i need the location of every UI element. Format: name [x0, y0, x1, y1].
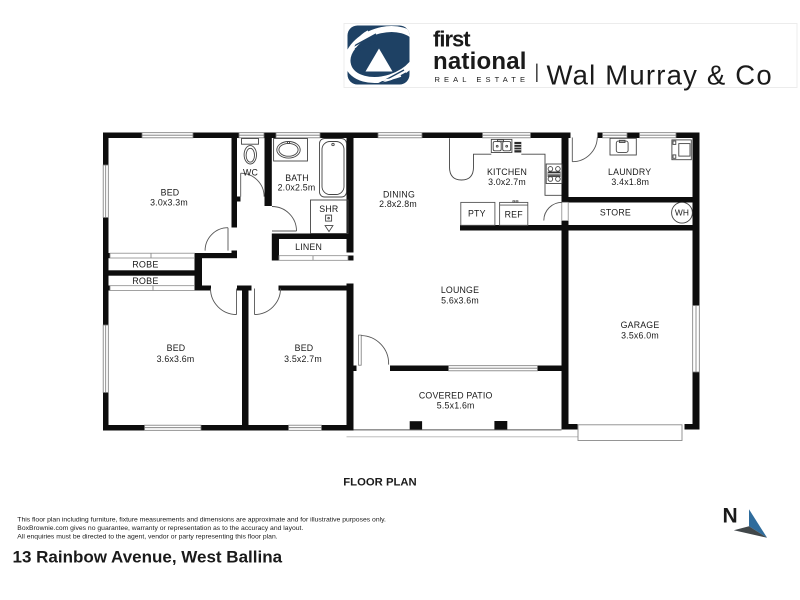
svg-text:SHR: SHR	[319, 204, 338, 214]
svg-text:3.0x3.3m: 3.0x3.3m	[150, 197, 188, 207]
svg-text:LOUNGE: LOUNGE	[441, 285, 479, 295]
svg-text:WC: WC	[243, 168, 259, 178]
svg-text:BED: BED	[167, 343, 186, 353]
svg-text:13 Rainbow Avenue, West Ballin: 13 Rainbow Avenue, West Ballina	[13, 548, 283, 567]
svg-text:3.4x1.8m: 3.4x1.8m	[611, 177, 649, 187]
svg-text:LAUNDRY: LAUNDRY	[608, 167, 651, 177]
svg-text:5.5x1.6m: 5.5x1.6m	[437, 401, 475, 411]
svg-text:PTY: PTY	[468, 208, 486, 218]
svg-text:5.6x3.6m: 5.6x3.6m	[441, 295, 479, 305]
svg-text:N: N	[723, 504, 738, 527]
svg-text:ROBE: ROBE	[132, 276, 158, 286]
svg-text:BATH: BATH	[285, 173, 309, 183]
svg-text:BED: BED	[295, 343, 314, 353]
svg-text:Wal Murray & Co: Wal Murray & Co	[547, 59, 773, 90]
svg-text:GARAGE: GARAGE	[621, 320, 660, 330]
svg-text:All enquiries must be directed: All enquiries must be directed to the ag…	[17, 534, 277, 541]
svg-text:KITCHEN: KITCHEN	[487, 167, 527, 177]
svg-text:LINEN: LINEN	[295, 242, 322, 252]
svg-text:REF: REF	[505, 209, 524, 219]
svg-text:3.6x3.6m: 3.6x3.6m	[157, 354, 195, 364]
svg-text:2.8x2.8m: 2.8x2.8m	[379, 199, 417, 209]
svg-text:STORE: STORE	[600, 208, 631, 218]
svg-text:3.5x2.7m: 3.5x2.7m	[284, 354, 322, 364]
svg-text:COVERED PATIO: COVERED PATIO	[419, 390, 493, 400]
svg-text:national: national	[433, 48, 527, 75]
svg-text:FLOOR PLAN: FLOOR PLAN	[343, 477, 416, 489]
svg-text:3.5x6.0m: 3.5x6.0m	[621, 330, 659, 340]
svg-text:ROBE: ROBE	[132, 260, 158, 270]
svg-text:BoxBrownie.com gives no guaran: BoxBrownie.com gives no guarantee, warra…	[17, 525, 303, 532]
svg-text:WH: WH	[675, 208, 689, 218]
svg-text:REAL ESTATE: REAL ESTATE	[435, 75, 530, 84]
svg-text:BED: BED	[161, 187, 180, 197]
svg-text:This floor plan including furn: This floor plan including furniture, fix…	[17, 516, 386, 523]
svg-text:3.0x2.7m: 3.0x2.7m	[488, 177, 526, 187]
svg-text:2.0x2.5m: 2.0x2.5m	[278, 183, 316, 193]
svg-text:DINING: DINING	[383, 190, 415, 200]
